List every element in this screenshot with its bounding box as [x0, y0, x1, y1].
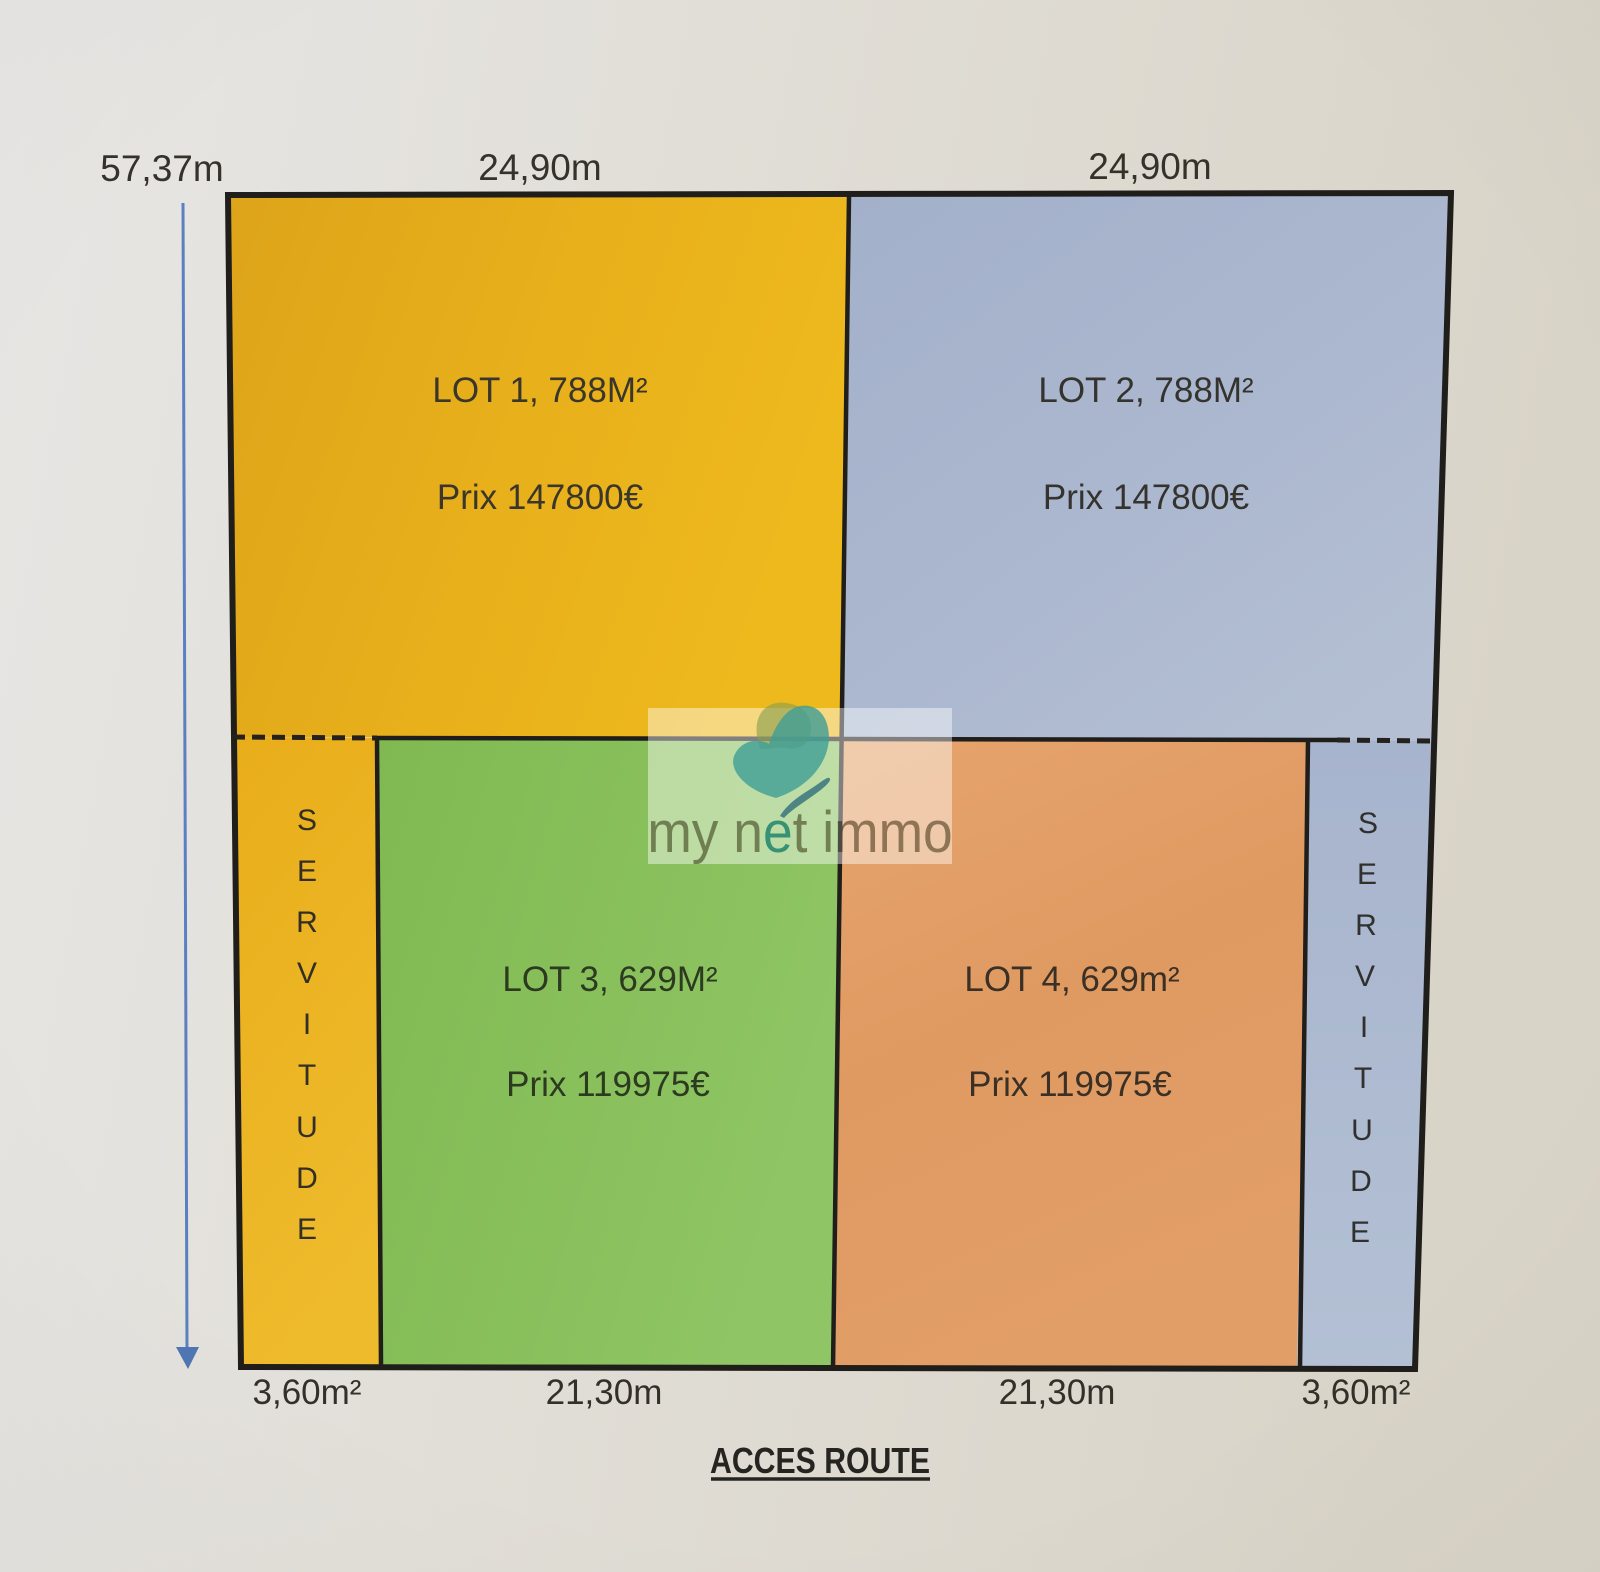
svg-text:LOT 3, 629M²: LOT 3, 629M² [502, 960, 717, 999]
svg-text:D: D [1350, 1165, 1372, 1198]
svg-text:V: V [1355, 960, 1375, 993]
svg-text:ACCES ROUTE: ACCES ROUTE [710, 1442, 930, 1482]
svg-text:24,90m: 24,90m [478, 147, 601, 188]
svg-text:S: S [1358, 807, 1378, 840]
svg-text:E: E [297, 1213, 317, 1246]
svg-text:LOT 1, 788M²: LOT 1, 788M² [432, 371, 647, 410]
svg-text:E: E [1357, 858, 1377, 891]
svg-text:S: S [297, 804, 317, 837]
svg-text:E: E [297, 855, 317, 888]
svg-text:V: V [297, 957, 317, 990]
svg-text:Prix 119975€: Prix 119975€ [968, 1065, 1172, 1104]
svg-text:57,37m: 57,37m [100, 148, 223, 189]
svg-text:24,90m: 24,90m [1088, 146, 1211, 187]
svg-text:I: I [1360, 1011, 1368, 1044]
svg-text:Prix 147800€: Prix 147800€ [1043, 478, 1249, 517]
svg-text:my net immo: my net immo [647, 800, 952, 865]
svg-text:U: U [1351, 1114, 1373, 1147]
svg-text:21,30m: 21,30m [546, 1373, 663, 1412]
svg-text:I: I [303, 1008, 311, 1041]
svg-text:Prix 147800€: Prix 147800€ [437, 478, 643, 517]
svg-text:R: R [1355, 909, 1377, 942]
svg-text:Prix 119975€: Prix 119975€ [506, 1065, 710, 1104]
svg-text:R: R [296, 906, 318, 939]
svg-text:LOT 4, 629m²: LOT 4, 629m² [964, 960, 1179, 999]
svg-text:3,60m²: 3,60m² [253, 1373, 362, 1412]
svg-text:3,60m²: 3,60m² [1302, 1373, 1411, 1412]
svg-text:21,30m: 21,30m [999, 1373, 1116, 1412]
svg-text:D: D [296, 1162, 318, 1195]
svg-text:T: T [298, 1059, 316, 1092]
svg-text:U: U [296, 1111, 318, 1144]
svg-text:LOT 2, 788M²: LOT 2, 788M² [1038, 371, 1253, 410]
svg-text:E: E [1350, 1216, 1370, 1249]
svg-text:T: T [1354, 1062, 1372, 1095]
